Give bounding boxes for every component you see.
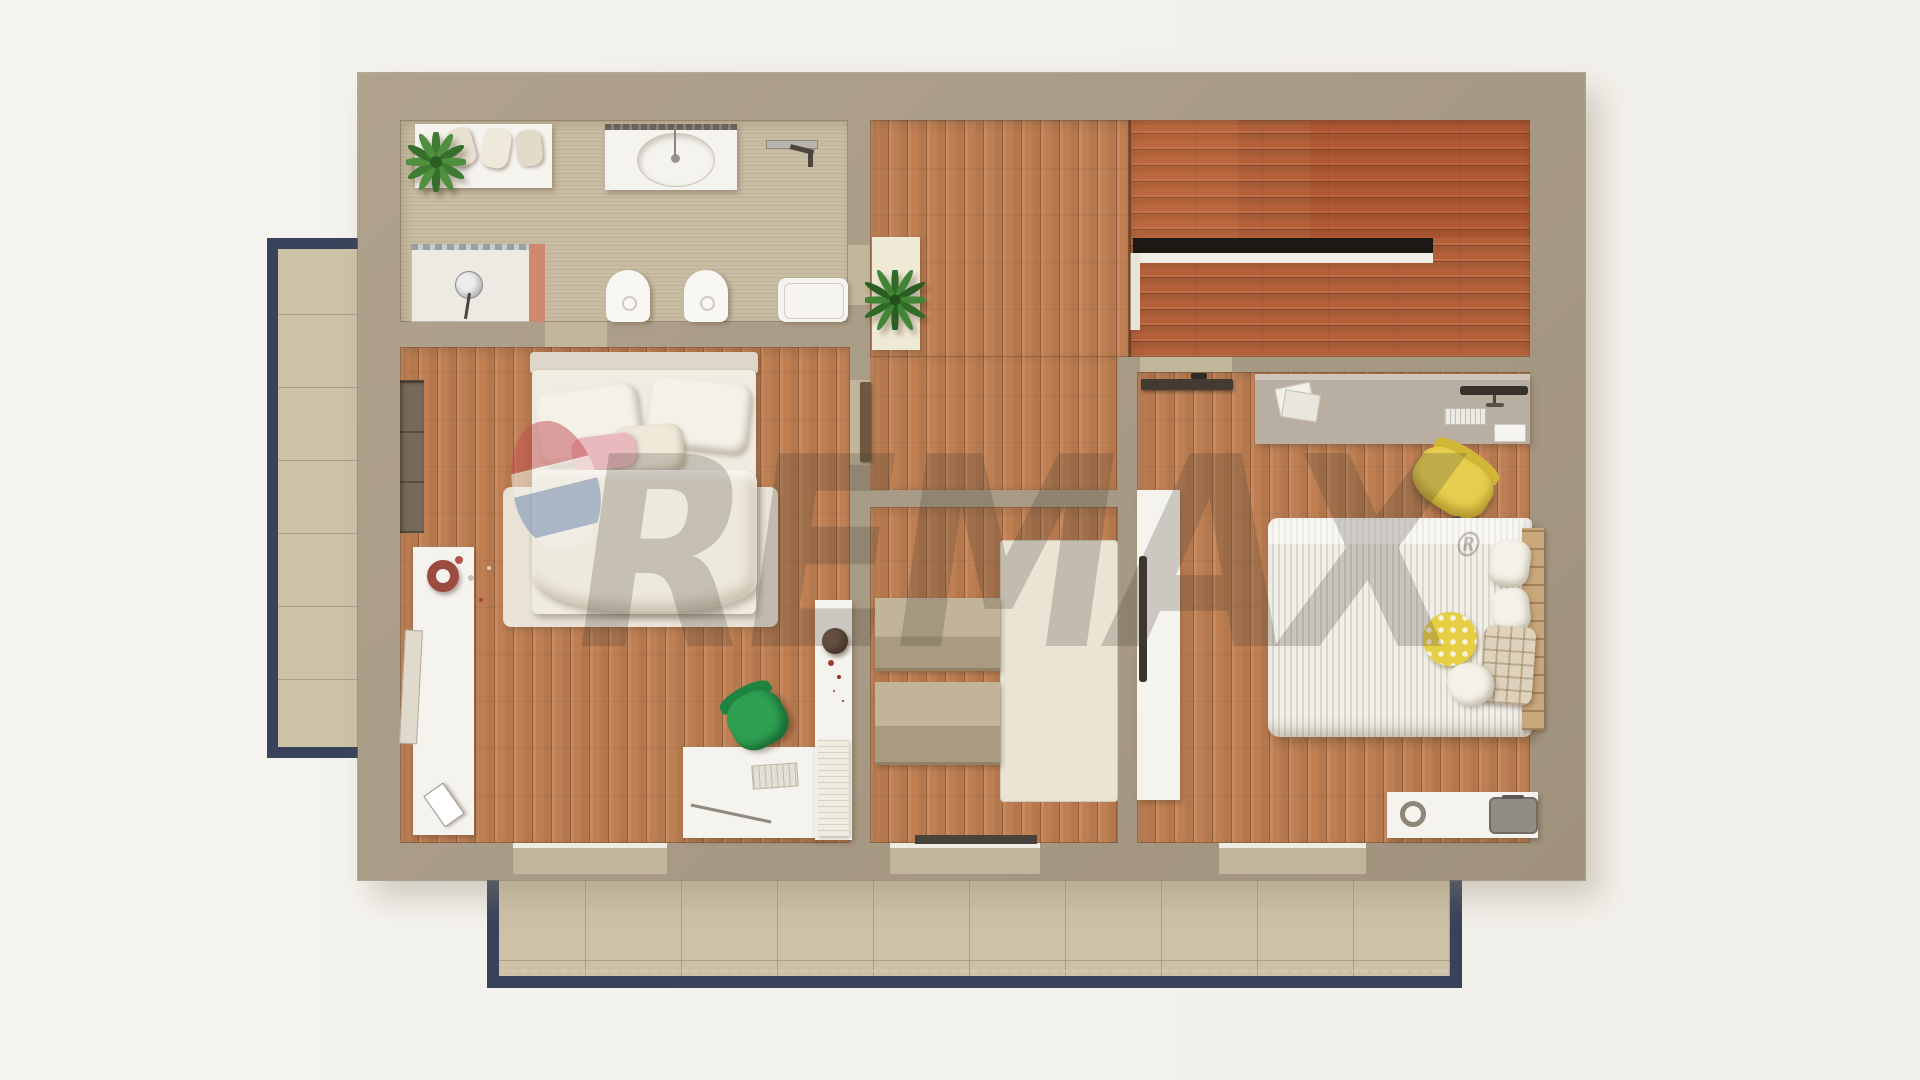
staircase-red-patch [1310,120,1530,238]
stair-void-edge [1133,238,1433,253]
staircase-light-patch [1130,120,1238,238]
doorway-bathroom-bedroom [545,322,607,347]
shelf-ring-decor [1400,801,1426,827]
towel-rail-bracket [808,152,813,167]
door-handle-icon [1191,373,1207,379]
doorway-bedroom-right [1140,357,1232,372]
flower-sprig [455,556,463,564]
desk-right-edge [1255,374,1530,380]
balcony-door-closet-room [890,848,1040,874]
balcony-door-right-bedroom [1219,848,1366,874]
vanity-back-edge [605,124,737,130]
bathtub-inner [784,283,844,319]
shower-side-wall [529,244,545,322]
wall-niche [400,380,424,533]
monitor-icon [1460,386,1528,395]
watermark-brand: REMAX [552,402,1474,709]
bidet-ring [700,296,715,311]
rolled-towel [514,129,544,168]
watermark-text: REMAX® [555,424,1493,689]
shower-glass-frame [411,244,545,250]
note-paper [1494,424,1526,442]
stair-side-stringer [1130,253,1140,330]
book-stack [818,740,849,836]
balcony-left-tiles [278,249,360,747]
balcony-left [267,238,360,758]
potted-plant-icon [406,132,466,192]
keyboard-icon [751,762,799,789]
desk-left [683,747,822,838]
door-leaf-bedroom-right [1141,379,1233,390]
gray-tray [1489,797,1538,834]
sink-faucet-stem [674,128,676,156]
balcony-bottom [487,878,1462,988]
monitor-base [1486,403,1504,407]
floor-plan-scene: REMAX® [0,0,1920,1080]
toilet-flush-ring [622,296,637,311]
potted-plant-icon [865,270,925,330]
stair-void-white-edge [1133,253,1433,263]
gray-tray-handle [1502,795,1524,799]
floor-seam [1128,120,1131,357]
balcony-door-left-bedroom [513,848,667,874]
balcony-railing-dashes [501,944,1448,972]
doormat [915,835,1037,844]
pillow [1487,537,1533,588]
wreath-decor-icon [427,560,459,592]
